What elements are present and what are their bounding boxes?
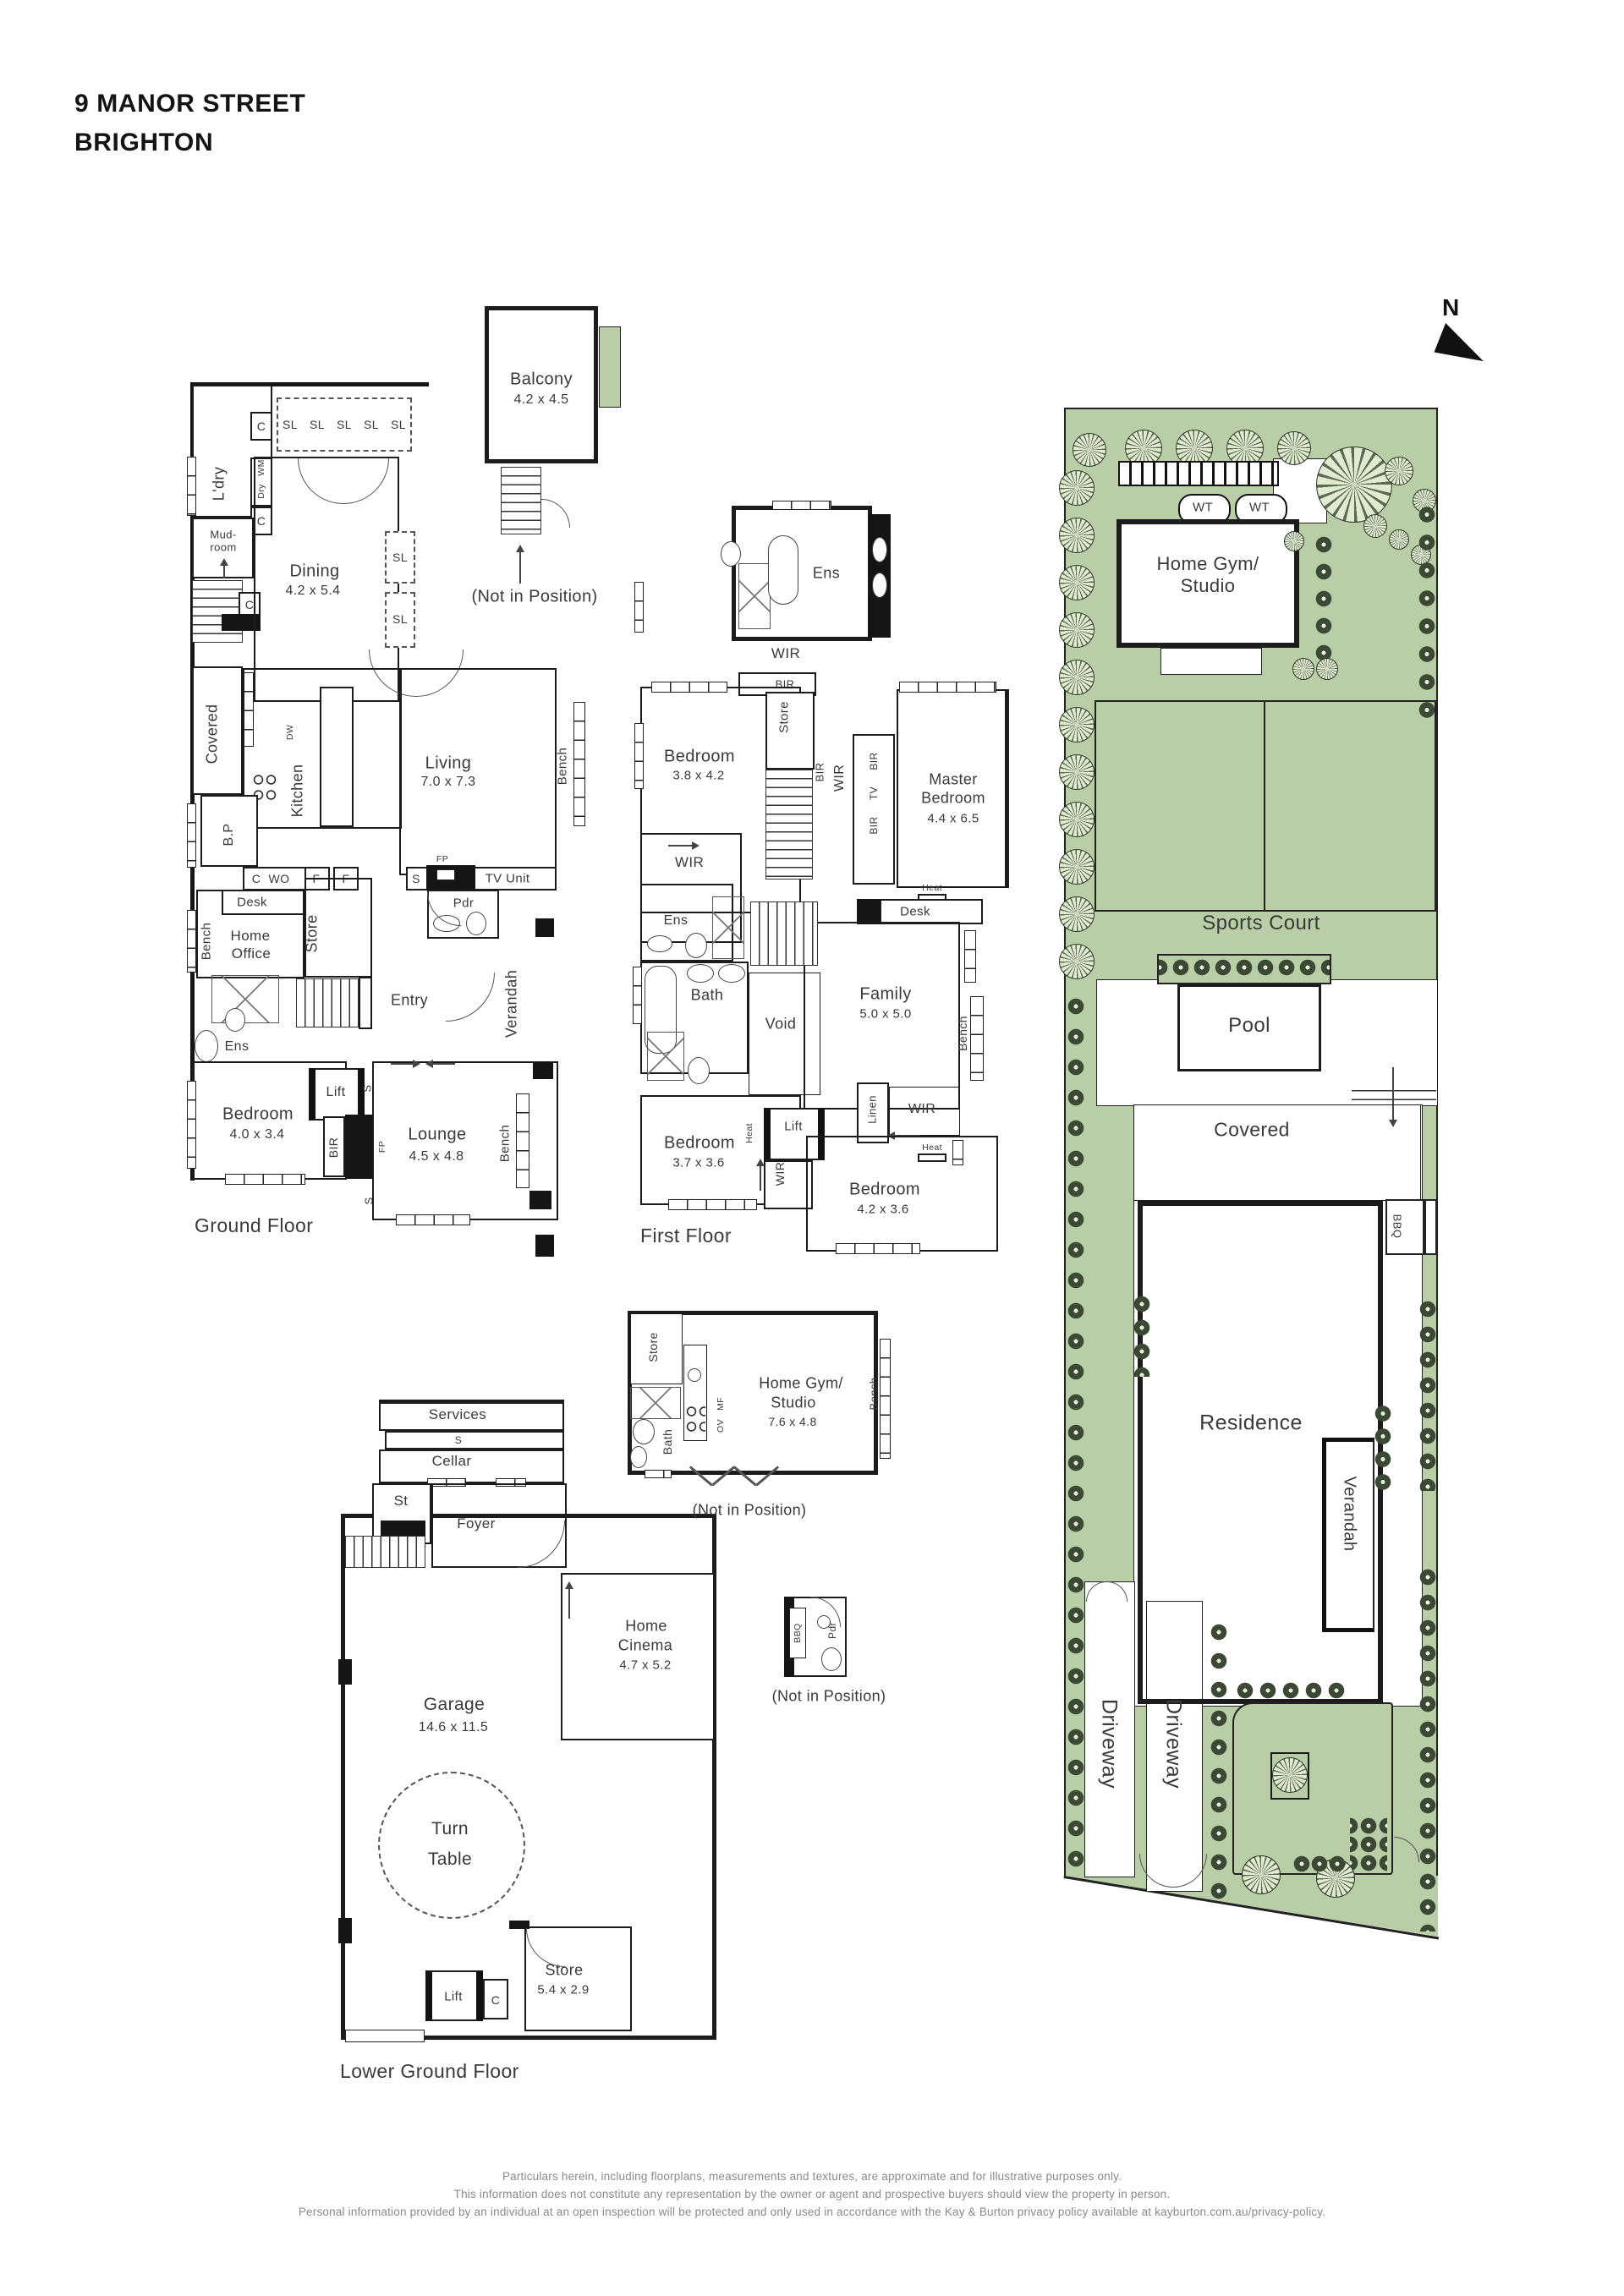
title-line2: BRIGHTON bbox=[74, 123, 305, 162]
bedroom1-label: Bedroom bbox=[664, 748, 735, 767]
hedge-strip bbox=[1350, 1817, 1387, 1872]
toilet-icon bbox=[821, 1647, 842, 1671]
basin-icon bbox=[718, 964, 745, 983]
c-lg-label: C bbox=[491, 1993, 501, 2007]
cupboard-c-label: C bbox=[257, 419, 266, 433]
heat-label: Heat bbox=[922, 883, 942, 893]
arrow-up-icon bbox=[565, 1581, 573, 1589]
living-label: Living bbox=[425, 754, 472, 774]
cupboard-c3-label: C bbox=[245, 598, 255, 611]
lift-gf-label: Lift bbox=[326, 1085, 346, 1100]
arrow-up-icon bbox=[220, 558, 228, 566]
store-f1-label: Store bbox=[777, 701, 792, 733]
lounge-dims: 4.5 x 4.8 bbox=[409, 1149, 464, 1164]
gym-bench-label: Bench bbox=[868, 1378, 881, 1411]
ground-floor-label: Ground Floor bbox=[195, 1214, 313, 1237]
wall bbox=[857, 899, 881, 924]
tree-icon bbox=[1059, 612, 1095, 648]
shower-icon bbox=[712, 896, 744, 959]
family-dims: 5.0 x 5.0 bbox=[859, 1007, 911, 1022]
sports-court bbox=[1095, 700, 1436, 912]
basin-icon bbox=[872, 573, 887, 598]
st-label: St bbox=[394, 1493, 409, 1510]
tree-icon bbox=[1363, 514, 1387, 538]
s-label: S bbox=[412, 872, 420, 885]
dw-label: DW bbox=[285, 725, 295, 740]
pool-label: Pool bbox=[1228, 1014, 1270, 1038]
window bbox=[952, 1140, 963, 1165]
arrow-right-icon bbox=[413, 1060, 420, 1068]
hedge-strip bbox=[1418, 1564, 1438, 1932]
turn-table-circle bbox=[378, 1772, 525, 1919]
basin-icon bbox=[872, 537, 887, 562]
window bbox=[970, 996, 984, 1081]
gym-store-label: Store bbox=[646, 1332, 660, 1362]
window bbox=[634, 723, 644, 789]
basin-icon bbox=[630, 1446, 647, 1468]
bedroom-gf-dims: 4.0 x 3.4 bbox=[230, 1127, 285, 1143]
home-office-l1: Home bbox=[231, 928, 271, 945]
bedroom3-dims: 4.2 x 3.6 bbox=[857, 1203, 908, 1217]
mudroom-label1: Mud- bbox=[210, 529, 236, 541]
arrow-shaft bbox=[391, 1063, 413, 1065]
balcony-label: Balcony bbox=[510, 370, 573, 390]
wall bbox=[533, 1062, 553, 1079]
site-stairs bbox=[1352, 1082, 1436, 1106]
window bbox=[187, 803, 196, 868]
tree-icon bbox=[1059, 896, 1095, 932]
gym-nip-label: (Not in Position) bbox=[693, 1502, 807, 1520]
store-gf-label: Store bbox=[304, 914, 321, 952]
window bbox=[836, 1243, 920, 1254]
bedroom3-label: Bedroom bbox=[849, 1181, 920, 1200]
wo-label: WO bbox=[269, 872, 290, 885]
stove-icon bbox=[685, 1404, 705, 1434]
hedge-strip bbox=[1418, 1296, 1438, 1491]
entry-label: Entry bbox=[391, 992, 428, 1010]
hedge-strip bbox=[1208, 1618, 1230, 1905]
fence-slats bbox=[1118, 461, 1279, 486]
desk-f1-label: Desk bbox=[900, 905, 930, 919]
stairs-f1 bbox=[765, 770, 813, 879]
tree-icon bbox=[1385, 457, 1413, 485]
site-gym-l2: Studio bbox=[1181, 575, 1236, 597]
cinema-dims: 4.7 x 5.2 bbox=[619, 1658, 671, 1673]
arrow-shaft bbox=[223, 565, 225, 578]
garage-door bbox=[345, 2030, 425, 2042]
tree-icon bbox=[1316, 447, 1392, 523]
garage-dims: 14.6 x 11.5 bbox=[419, 1720, 488, 1735]
c-label: C bbox=[252, 872, 261, 885]
bbq-site-label: BBQ bbox=[1391, 1214, 1404, 1239]
stair-landing-wall bbox=[381, 1521, 425, 1536]
wir-f1-label: WIR bbox=[771, 645, 800, 662]
bath-f1-label: Bath bbox=[691, 987, 724, 1005]
sl-closet-label: SL bbox=[392, 551, 408, 564]
door-arc bbox=[541, 499, 570, 528]
basin-icon bbox=[647, 935, 672, 952]
court-centerline bbox=[1264, 700, 1265, 912]
tree-icon bbox=[1272, 1757, 1308, 1793]
arrow-shaft bbox=[519, 550, 521, 584]
cinema-l2: Cinema bbox=[618, 1637, 672, 1655]
toilet-icon bbox=[633, 1419, 655, 1444]
window bbox=[651, 682, 727, 693]
tree-icon bbox=[1059, 470, 1095, 506]
cinema-l1: Home bbox=[625, 1618, 667, 1636]
turntable-l1: Turn bbox=[431, 1819, 469, 1839]
services-label: Services bbox=[429, 1406, 486, 1423]
window bbox=[187, 910, 196, 973]
wt-label: WT bbox=[1193, 501, 1213, 515]
first-floor-label: First Floor bbox=[640, 1225, 732, 1247]
ens-gf-label: Ens bbox=[225, 1039, 250, 1055]
lift-f1-label: Lift bbox=[784, 1120, 803, 1134]
arrow-right-icon bbox=[692, 841, 700, 850]
balcony-stairs bbox=[501, 467, 541, 534]
family-label: Family bbox=[859, 985, 911, 1005]
linen-label: Linen bbox=[866, 1095, 879, 1124]
hedge-strip bbox=[1132, 1292, 1152, 1377]
wt-label2: WT bbox=[1249, 501, 1270, 515]
window bbox=[880, 1339, 891, 1459]
room-master bbox=[897, 689, 1009, 888]
master-l1: Master bbox=[929, 771, 977, 789]
north-arrow-icon bbox=[1432, 323, 1484, 364]
title-line1: 9 MANOR STREET bbox=[74, 85, 305, 123]
hedge-strip bbox=[1292, 1854, 1347, 1874]
gym-l2: Studio bbox=[771, 1395, 815, 1412]
tree-icon bbox=[1292, 658, 1314, 680]
turntable-l2: Table bbox=[428, 1849, 472, 1870]
sl-label: SL bbox=[364, 418, 379, 431]
arrow-shaft bbox=[568, 1588, 570, 1619]
north-label: N bbox=[1442, 294, 1459, 321]
gym-dims: 7.6 x 4.8 bbox=[768, 1415, 816, 1428]
window bbox=[396, 1214, 470, 1225]
void-f1 bbox=[749, 973, 820, 1095]
window bbox=[899, 682, 996, 693]
window bbox=[645, 1470, 672, 1478]
bedroom-gf-label: Bedroom bbox=[222, 1105, 294, 1125]
site-verandah-label: Verandah bbox=[1340, 1477, 1359, 1552]
robe-bir-label2: BIR bbox=[868, 816, 880, 834]
bir-gf-label: BIR bbox=[326, 1137, 340, 1159]
hedge-strip bbox=[1311, 531, 1336, 665]
bbq-nip-label: (Not in Position) bbox=[772, 1688, 886, 1706]
balcony-nip: (Not in Position) bbox=[471, 588, 597, 607]
arrow-shaft bbox=[760, 1165, 761, 1191]
window bbox=[516, 1093, 529, 1188]
bedroom2-dims: 3.7 x 3.6 bbox=[672, 1156, 724, 1170]
bathtub-icon bbox=[768, 535, 798, 605]
shelf-s-label: S bbox=[455, 1434, 462, 1446]
shower-icon bbox=[211, 975, 279, 1023]
stairs-f1b bbox=[750, 901, 818, 966]
foyer-label: Foyer bbox=[457, 1515, 495, 1532]
shelf-s bbox=[385, 1431, 564, 1449]
balcony-dims: 4.2 x 4.5 bbox=[514, 392, 569, 408]
covered-gf-label: Covered bbox=[204, 704, 222, 764]
robe-tv-label: TV bbox=[868, 786, 880, 800]
wall bbox=[338, 1918, 352, 1943]
arrow-up-icon bbox=[756, 1159, 765, 1166]
heat-v-label: Heat bbox=[744, 1123, 754, 1143]
tv-unit-label: TV Unit bbox=[486, 872, 530, 886]
master-dims: 4.4 x 6.5 bbox=[927, 812, 979, 826]
residence-label: Residence bbox=[1199, 1411, 1303, 1436]
gym-bath-label: Bath bbox=[661, 1429, 674, 1455]
bench-label3: Bench bbox=[498, 1125, 513, 1163]
lower-ground-floor-label: Lower Ground Floor bbox=[340, 2060, 519, 2083]
fp-label: FP bbox=[436, 854, 448, 864]
arrow-shaft bbox=[668, 845, 692, 847]
tree-icon bbox=[1059, 944, 1095, 979]
store-lg-dims: 5.4 x 2.9 bbox=[537, 1983, 589, 1997]
basin-icon bbox=[195, 1030, 218, 1062]
fireplace-inner bbox=[436, 869, 455, 880]
bedroom1-dims: 3.8 x 4.2 bbox=[672, 769, 724, 783]
cellar-label: Cellar bbox=[432, 1453, 472, 1470]
wir2-label: WIR bbox=[675, 854, 704, 871]
hedge-row-box bbox=[1157, 954, 1331, 984]
kitchen-label: Kitchen bbox=[289, 764, 307, 818]
ens2-label: Ens bbox=[664, 913, 689, 929]
bench-label: Bench bbox=[556, 748, 570, 786]
bp-label: B.P bbox=[222, 824, 237, 847]
bir-stair-label: BIR bbox=[814, 763, 826, 782]
driveway-1-label: Driveway bbox=[1097, 1699, 1122, 1789]
toilet-icon bbox=[466, 912, 486, 935]
driveway-2-label: Driveway bbox=[1161, 1699, 1186, 1789]
hedge-strip bbox=[1374, 1402, 1391, 1492]
desk-f1 bbox=[880, 899, 983, 924]
mudroom-label2: room bbox=[210, 541, 236, 554]
bbq-site-box2 bbox=[1424, 1199, 1437, 1255]
ens-f1-label: Ens bbox=[813, 565, 840, 583]
arrow-left-icon bbox=[425, 1060, 433, 1068]
arrow-shaft bbox=[433, 1063, 455, 1065]
tree-icon bbox=[1059, 660, 1095, 695]
site-gym-l1: Home Gym/ bbox=[1157, 553, 1259, 575]
master-l2: Bedroom bbox=[921, 790, 985, 808]
mf-label: MF bbox=[716, 1397, 726, 1411]
hedge-strip bbox=[1064, 991, 1088, 1876]
entry-stairs bbox=[296, 978, 359, 1027]
window bbox=[187, 1081, 196, 1169]
ov-label: OV bbox=[716, 1419, 726, 1433]
wir3-label: WIR bbox=[908, 1102, 935, 1117]
tree-icon bbox=[1059, 754, 1095, 790]
window bbox=[772, 501, 831, 510]
window bbox=[964, 930, 976, 983]
toilet-icon bbox=[688, 1057, 710, 1084]
verandah-gf-label: Verandah bbox=[503, 970, 521, 1038]
lounge-label: Lounge bbox=[408, 1126, 466, 1145]
tree-icon bbox=[1059, 849, 1095, 885]
tree-icon bbox=[1284, 531, 1304, 551]
tree-icon bbox=[1059, 565, 1095, 600]
shower-icon bbox=[630, 1387, 681, 1419]
shower-icon bbox=[738, 563, 771, 629]
sl-closet2-label: SL bbox=[392, 612, 408, 626]
tree-icon bbox=[1059, 802, 1095, 837]
window bbox=[633, 967, 642, 1024]
window bbox=[573, 702, 585, 826]
balcony-planter bbox=[599, 326, 621, 408]
tree-icon bbox=[1059, 518, 1095, 553]
toilet-icon bbox=[685, 933, 707, 958]
wall bbox=[529, 1191, 551, 1209]
mudroom-stairs bbox=[192, 580, 243, 643]
wir-under-lift-label: WIR bbox=[773, 1162, 787, 1186]
dining-dims: 4.2 x 5.4 bbox=[286, 584, 341, 599]
lift-lg-label: Lift bbox=[444, 1990, 463, 2004]
footer-line3: Personal information provided by an indi… bbox=[0, 2206, 1624, 2218]
footer-line2: This information does not constitute any… bbox=[0, 2188, 1624, 2200]
tree-icon bbox=[1316, 658, 1338, 680]
floorplan-page: 9 MANOR STREET BRIGHTON N Balcony 4.2 x … bbox=[0, 0, 1624, 2296]
sl-label: SL bbox=[391, 418, 406, 431]
bench-label2: Bench bbox=[200, 923, 214, 961]
stairs-lg bbox=[345, 1536, 425, 1568]
room-cinema bbox=[561, 1573, 715, 1740]
footer-line1: Particulars herein, including floorplans… bbox=[0, 2170, 1624, 2183]
tree-icon bbox=[1059, 707, 1095, 743]
sl-label: SL bbox=[337, 418, 352, 431]
hedge-strip bbox=[1233, 1680, 1348, 1701]
garage-label: Garage bbox=[424, 1695, 485, 1715]
site-covered-label: Covered bbox=[1214, 1119, 1290, 1142]
door-arc bbox=[446, 973, 495, 1022]
wall bbox=[535, 1235, 554, 1257]
laundry-label: L'dry bbox=[211, 467, 228, 501]
arrow-up-icon bbox=[516, 545, 524, 552]
basin-icon bbox=[687, 964, 714, 983]
gym-l1: Home Gym/ bbox=[759, 1375, 843, 1393]
bedroom2-label: Bedroom bbox=[664, 1134, 735, 1153]
shower-icon bbox=[647, 1032, 684, 1081]
toilet-icon bbox=[225, 1008, 245, 1032]
sports-court-label: Sports Court bbox=[1202, 912, 1320, 935]
wall bbox=[535, 918, 554, 937]
toilet-icon bbox=[721, 541, 741, 567]
room-living bbox=[399, 668, 557, 875]
window bbox=[225, 1174, 305, 1185]
gym-apron bbox=[1160, 648, 1262, 675]
sl-label: SL bbox=[283, 418, 298, 431]
window bbox=[634, 582, 644, 633]
dining-label: Dining bbox=[289, 562, 339, 582]
living-dims: 7.0 x 7.3 bbox=[421, 775, 476, 790]
tree-icon bbox=[1073, 433, 1106, 467]
wall bbox=[345, 1115, 374, 1179]
bbq-label: BBQ bbox=[793, 1623, 803, 1642]
tree-icon bbox=[1389, 529, 1409, 550]
tree-icon bbox=[1242, 1855, 1281, 1894]
home-office-l2: Office bbox=[232, 945, 272, 962]
void-label: Void bbox=[765, 1016, 797, 1033]
wir-corridor-label: WIR bbox=[832, 764, 848, 792]
wall bbox=[338, 1659, 352, 1685]
sl-label: SL bbox=[310, 418, 325, 431]
page-title: 9 MANOR STREET BRIGHTON bbox=[74, 85, 305, 162]
kitchen-island bbox=[320, 687, 354, 827]
hedge-strip bbox=[1416, 501, 1438, 727]
sink-icon bbox=[688, 1368, 701, 1382]
window bbox=[187, 457, 196, 516]
room-cellar bbox=[379, 1449, 564, 1483]
robe-bir-label: BIR bbox=[868, 752, 880, 770]
tree-icon bbox=[1277, 431, 1311, 465]
bench-f1-label: Bench bbox=[956, 1016, 969, 1051]
stair-landing bbox=[359, 977, 372, 1029]
window bbox=[668, 1199, 757, 1210]
